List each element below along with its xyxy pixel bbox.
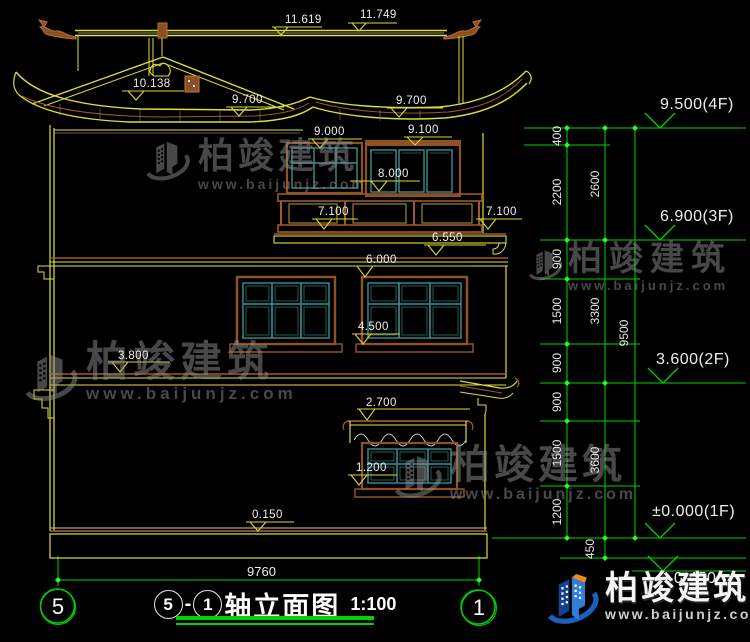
dim-3600: 3600 xyxy=(588,447,602,474)
ridge-finial-right xyxy=(444,27,480,39)
axis-number-left: 5 xyxy=(52,594,64,620)
elevation-marker-11-749: 11.749 xyxy=(360,9,397,21)
story-level-2f: 3.600(2F) xyxy=(656,351,730,368)
watermark-site: www.baijunjz.com xyxy=(86,384,297,404)
elevation-marker-0-150: 0.150 xyxy=(252,509,283,521)
elevation-marker-9-000: 9.000 xyxy=(314,126,345,138)
watermark-site: www.baijunjz.com xyxy=(568,278,732,293)
elevation-marker-11-619: 11.619 xyxy=(285,14,322,26)
dim-400: 400 xyxy=(550,126,564,146)
elevation-marker-4-500: 4.500 xyxy=(358,321,389,333)
title-underline-thin xyxy=(176,623,374,625)
elevation-marker-9-700-right: 9.700 xyxy=(396,95,427,107)
dim-total-width: 9760 xyxy=(247,564,276,579)
company-logo-icon xyxy=(543,570,599,634)
axis-number-right: 1 xyxy=(473,595,485,621)
roof-ridge xyxy=(39,20,481,56)
elevation-marker-10-138: 10.138 xyxy=(133,78,171,90)
title-scale: 1:100 xyxy=(350,594,396,615)
title-axis-b: 1 xyxy=(203,595,212,615)
balcony-slab xyxy=(274,234,506,254)
balcony-railing xyxy=(278,194,482,232)
watermark-top: 柏竣建筑 www.baijunjz.com xyxy=(140,136,367,192)
dim-3300: 3300 xyxy=(588,298,602,325)
elevation-marker-1-200: 1.200 xyxy=(356,462,387,474)
elevation-marker-2-700: 2.700 xyxy=(366,397,397,409)
watermark-brand: 柏竣建筑 xyxy=(86,340,297,384)
watermark-logo-icon xyxy=(140,136,192,188)
dim-900-a: 900 xyxy=(550,249,564,269)
axis-bubble-5: 5 xyxy=(40,589,76,625)
cad-elevation-drawing: 11.619 11.749 10.138 9.700 9.700 9.000 9… xyxy=(0,0,750,642)
window-2f-right xyxy=(356,277,473,352)
dim-1500-a: 1500 xyxy=(550,298,564,325)
elevation-marker-7-100-right: 7.100 xyxy=(486,206,517,218)
dim-900-c: 900 xyxy=(550,392,564,412)
story-level-4f: 9.500(4F) xyxy=(660,96,734,113)
watermark-site: www.baijunjz.com xyxy=(198,176,367,192)
watermark-brand: 柏竣建筑 xyxy=(450,444,636,486)
elevation-marker-9-100: 9.100 xyxy=(408,124,439,136)
story-level-3f: 6.900(3F) xyxy=(660,208,734,225)
dim-2200: 2200 xyxy=(550,179,564,206)
plinth xyxy=(50,528,487,558)
company-logo-brand: 柏竣建筑 xyxy=(605,570,750,606)
dim-450: 450 xyxy=(583,539,597,559)
axis-bubble-1: 1 xyxy=(461,590,497,626)
elevation-marker-8-000: 8.000 xyxy=(378,168,409,180)
company-logo: 柏竣建筑 www.baijunjz.com xyxy=(543,570,750,634)
company-logo-site: www.baijunjz.com xyxy=(605,606,750,622)
ridge-finial-left xyxy=(40,27,76,39)
dim-2600: 2600 xyxy=(588,171,602,198)
dim-1200: 1200 xyxy=(550,499,564,526)
elevation-marker-7-100-left: 7.100 xyxy=(318,206,349,218)
elevation-marker-3-800: 3.800 xyxy=(118,350,149,362)
elevation-marker-6-000: 6.000 xyxy=(366,254,397,266)
elevation-marker-6-550: 6.550 xyxy=(432,232,463,244)
elevation-marker-9-700-left: 9.700 xyxy=(232,94,263,106)
watermark-logo-icon xyxy=(18,348,80,410)
ridge-kingpost-ornament xyxy=(158,23,167,38)
dim-900-b: 900 xyxy=(550,353,564,373)
dim-9500: 9500 xyxy=(617,320,631,347)
gable-ornament xyxy=(185,76,199,92)
watermark-site: www.baijunjz.com xyxy=(450,486,636,504)
title-axis-a: 5 xyxy=(163,595,172,615)
watermark-left: 柏竣建筑 www.baijunjz.com xyxy=(18,340,297,410)
watermark-logo-icon xyxy=(388,450,444,506)
title-axis-circle-5: 5 xyxy=(154,590,183,619)
title-axis-circle-1: 1 xyxy=(193,590,222,619)
title-underline-thick xyxy=(176,616,374,620)
title-dash: - xyxy=(185,593,192,616)
story-level-1f: ±0.000(1F) xyxy=(652,503,735,520)
dim-1500-b: 1500 xyxy=(550,440,564,467)
watermark-brand: 柏竣建筑 xyxy=(198,136,367,176)
watermark-brand: 柏竣建筑 xyxy=(568,240,732,278)
